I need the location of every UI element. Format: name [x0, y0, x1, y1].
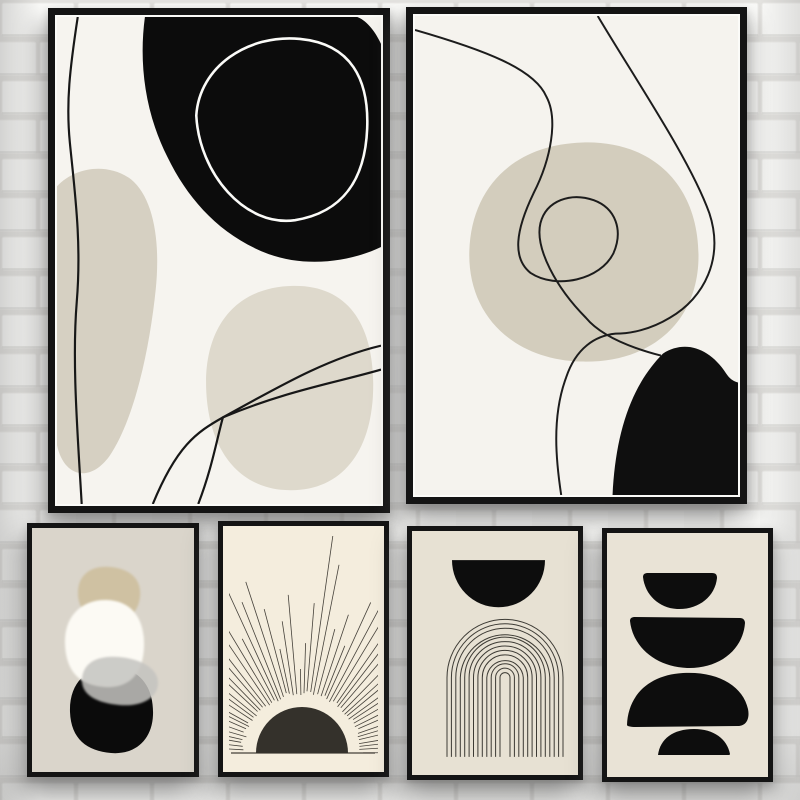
poster-woodcut-sunrise	[218, 521, 389, 777]
sun-ray	[300, 669, 301, 695]
poster-stacked-pebbles	[27, 523, 199, 777]
beige-blob-bottom	[206, 286, 373, 490]
beige-blob-center	[469, 142, 698, 361]
poster3-art	[32, 528, 194, 772]
poster-arch-lines	[407, 526, 583, 780]
gallery-wall-scene	[0, 0, 800, 800]
poster5-art	[412, 531, 578, 775]
poster-abstract-loop-right	[406, 7, 747, 504]
poster1-art	[55, 15, 383, 506]
poster6-art	[607, 533, 768, 777]
poster4-art	[223, 526, 384, 772]
poster2-art	[413, 14, 740, 497]
poster-balanced-stones	[602, 528, 773, 782]
poster-abstract-blobs-left	[48, 8, 390, 513]
